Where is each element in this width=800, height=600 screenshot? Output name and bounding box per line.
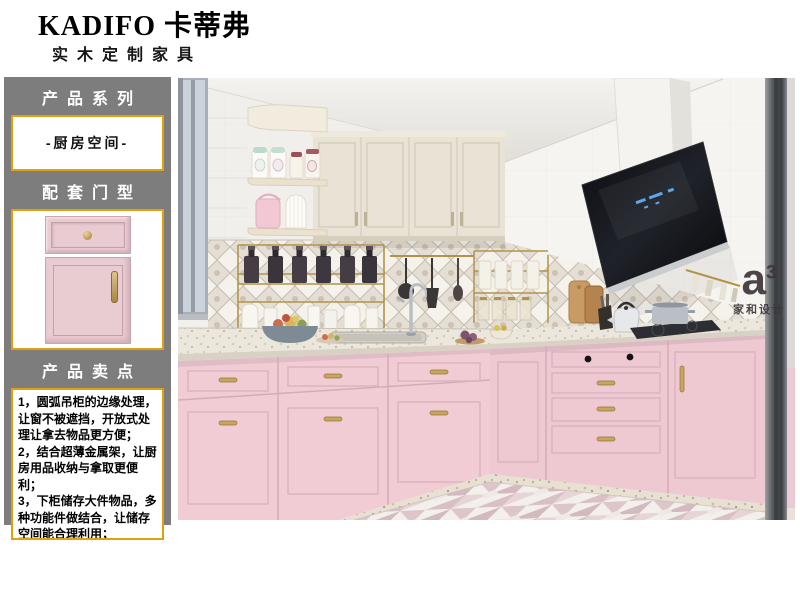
selling-point-3: 3，下柜储存大件物品，多种功能件做结合，让储存空间能合理利用； [18, 493, 157, 540]
series-value-box: -厨房空间- [11, 115, 164, 171]
watermark-caption: 家和设计 [727, 305, 791, 316]
poster-page: KADIFO 卡蒂弗 实木定制家具 产品系列 -厨房空间- 配套门型 产品卖点 … [0, 0, 800, 600]
selling-point-2: 2，结合超薄金属架，让厨房用品收纳与拿取更便利； [18, 444, 157, 494]
section-title-selling-points: 产品卖点 [4, 350, 171, 388]
sidebar: 产品系列 -厨房空间- 配套门型 产品卖点 1，圆弧吊柜的边缘处理，让窗不被遮挡… [4, 77, 171, 525]
cabinet-door-figure [45, 216, 131, 344]
door-handle [111, 271, 118, 303]
drawer-knob [83, 231, 92, 240]
door-figure-drawer [45, 216, 131, 254]
black-knob [627, 354, 634, 361]
watermark-mark: a [741, 255, 765, 304]
door-figure-panel [45, 257, 131, 344]
series-value: -厨房空间- [46, 133, 129, 153]
cutting-boards [569, 281, 603, 323]
selling-points-box: 1，圆弧吊柜的边缘处理，让窗不被遮挡，开放式处理让拿去物品更方便； 2，结合超薄… [11, 388, 164, 540]
brand-logo: KADIFO 卡蒂弗 [38, 4, 251, 44]
door-type-box [11, 209, 164, 350]
shelf-jars [252, 147, 320, 178]
designer-watermark: a3 家和设计 [727, 258, 791, 316]
brand-tagline: 实木定制家具 [52, 41, 202, 65]
selling-point-1: 1，圆弧吊柜的边缘处理，让窗不被遮挡，开放式处理让拿去物品更方便； [18, 394, 157, 444]
window [178, 78, 210, 320]
black-knob [585, 356, 592, 363]
section-title-door-type: 配套门型 [4, 171, 171, 209]
section-title-series: 产品系列 [4, 77, 171, 115]
kitchen-render-photo: a3 家和设计 [178, 78, 795, 520]
watermark-sup: 3 [766, 262, 777, 283]
cooking-pot [645, 302, 695, 324]
upper-cabinets [311, 131, 507, 248]
kitchen-scene [178, 78, 795, 520]
